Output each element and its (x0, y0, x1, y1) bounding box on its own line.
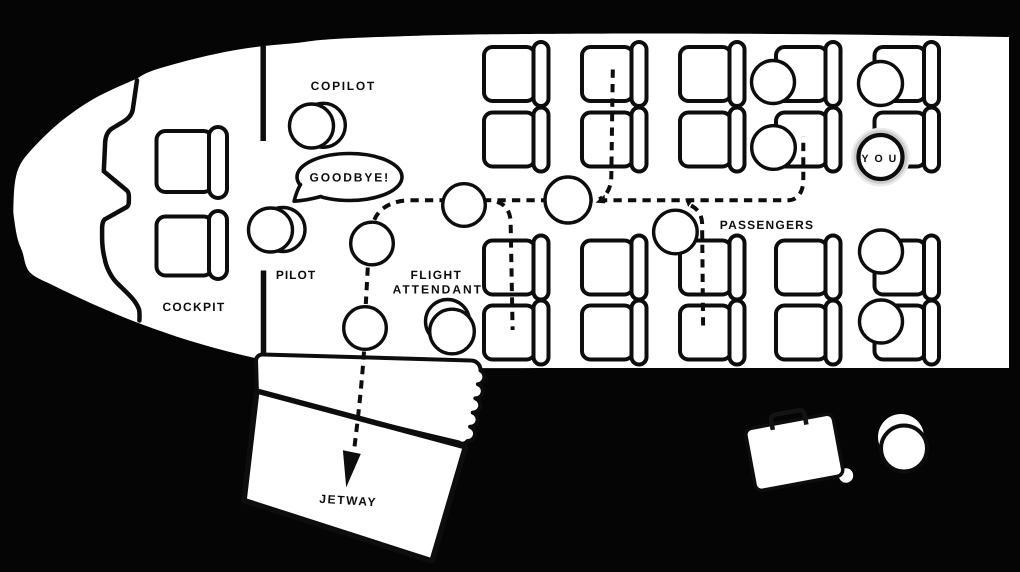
svg-text:YOU: YOU (862, 153, 903, 165)
svg-text:GOODBYE!: GOODBYE! (310, 171, 391, 185)
svg-text:PILOT: PILOT (276, 268, 316, 282)
svg-text:FLIGHT: FLIGHT (411, 268, 463, 282)
svg-text:PASSENGERS: PASSENGERS (720, 218, 814, 232)
svg-text:COCKPIT: COCKPIT (162, 300, 225, 314)
svg-text:ATTENDANT: ATTENDANT (393, 283, 483, 297)
svg-text:COPILOT: COPILOT (311, 79, 376, 93)
